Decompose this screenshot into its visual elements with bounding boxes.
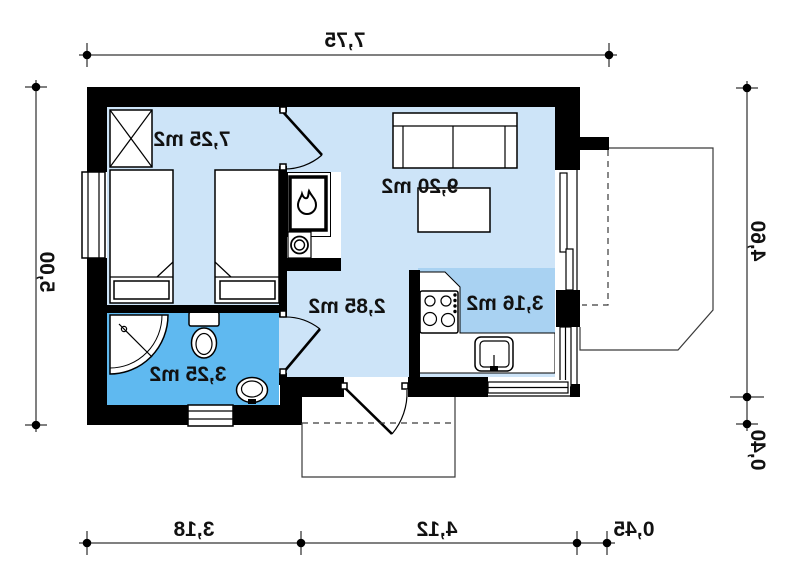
wall bbox=[87, 87, 579, 107]
wall bbox=[107, 305, 287, 313]
kitchen-hob-icon bbox=[420, 291, 458, 333]
dimension-bottom-right-label: 0,45 bbox=[613, 518, 654, 541]
wall bbox=[279, 166, 287, 317]
wall bbox=[87, 87, 107, 172]
dimension-right-main-label: 4,60 bbox=[746, 221, 769, 262]
sofa-icon bbox=[393, 113, 517, 168]
window bbox=[188, 405, 233, 426]
toilet-icon bbox=[189, 312, 219, 358]
living-area-label: 9,20 m2 bbox=[381, 175, 458, 198]
floor-plan: 7,25 m2 9,20 m2 2,85 m2 3,16 m2 3,25 m2 … bbox=[0, 0, 800, 567]
porch-outline bbox=[302, 397, 455, 477]
wall bbox=[287, 258, 341, 271]
wall bbox=[87, 405, 188, 425]
wall bbox=[579, 137, 609, 150]
bathroom-area-label: 3,25 m2 bbox=[149, 363, 226, 386]
dimension-right-offset-label: 0,40 bbox=[746, 430, 769, 471]
sliding-door-icon bbox=[555, 170, 580, 290]
dimension-bottom: 3,18 4,12 0,45 bbox=[79, 518, 654, 555]
dimension-bottom-center-label: 4,12 bbox=[417, 518, 458, 541]
bedroom-area-label: 7,25 m2 bbox=[153, 128, 230, 151]
hall-area-label: 2,85 m2 bbox=[308, 295, 385, 318]
dimension-top: 7,75 bbox=[79, 29, 617, 67]
dimension-bottom-left-label: 3,18 bbox=[173, 518, 214, 541]
kitchen-sink-icon bbox=[475, 337, 513, 371]
dimension-right: 4,60 0,40 bbox=[730, 81, 769, 470]
dimension-left-label: 5,00 bbox=[35, 252, 58, 293]
window bbox=[82, 172, 105, 258]
dimension-left: 5,00 bbox=[25, 80, 58, 432]
floor-plan-page: 7,25 m2 9,20 m2 2,85 m2 3,16 m2 3,25 m2 … bbox=[0, 0, 800, 567]
wall bbox=[556, 290, 580, 327]
kitchen-area-label: 3,16 m2 bbox=[466, 292, 543, 315]
window bbox=[488, 380, 570, 397]
terrace-outline bbox=[580, 148, 713, 350]
stove-icon bbox=[288, 173, 331, 237]
wall bbox=[87, 258, 107, 425]
bed-icon bbox=[215, 170, 279, 303]
wall bbox=[555, 87, 580, 170]
bed-icon bbox=[110, 170, 173, 303]
wall bbox=[280, 377, 344, 397]
boiler-icon bbox=[288, 232, 311, 258]
dimension-top-label: 7,75 bbox=[324, 29, 365, 52]
door-icon bbox=[341, 377, 408, 434]
wall bbox=[409, 270, 420, 377]
wall bbox=[408, 377, 488, 397]
wardrobe-icon bbox=[110, 110, 152, 167]
